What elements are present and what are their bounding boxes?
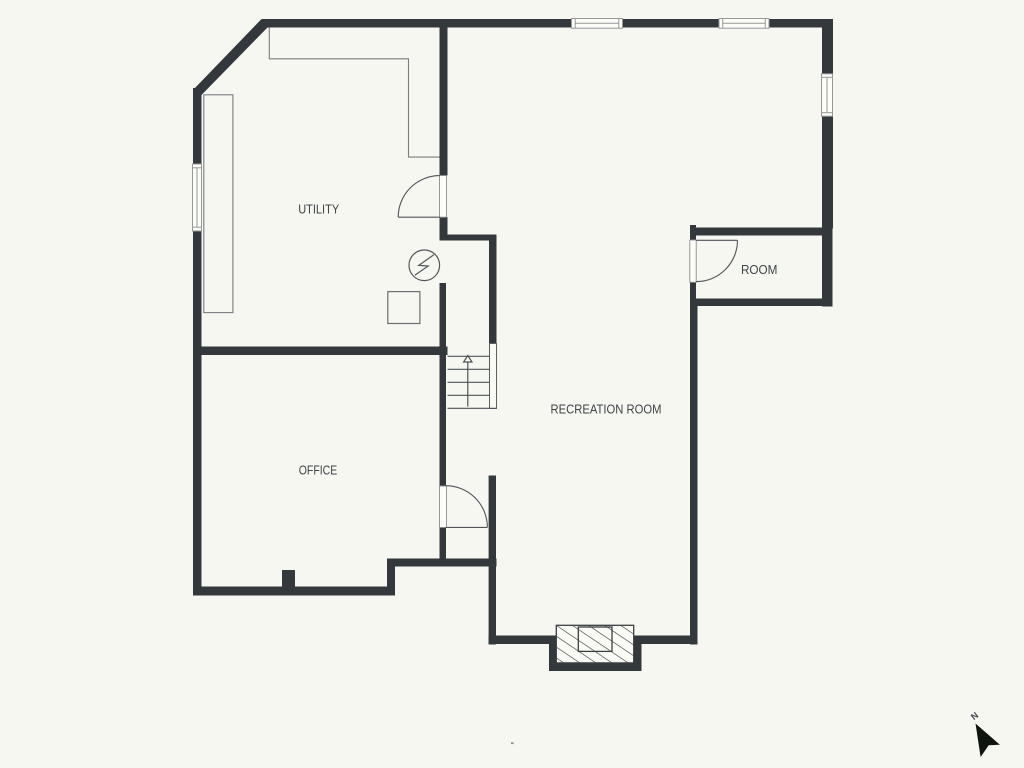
svg-text:OFFICE: OFFICE: [299, 464, 338, 478]
svg-text:UTILITY: UTILITY: [298, 202, 340, 216]
svg-text:ROOM: ROOM: [741, 263, 778, 277]
svg-text:RECREATION ROOM: RECREATION ROOM: [551, 403, 662, 417]
